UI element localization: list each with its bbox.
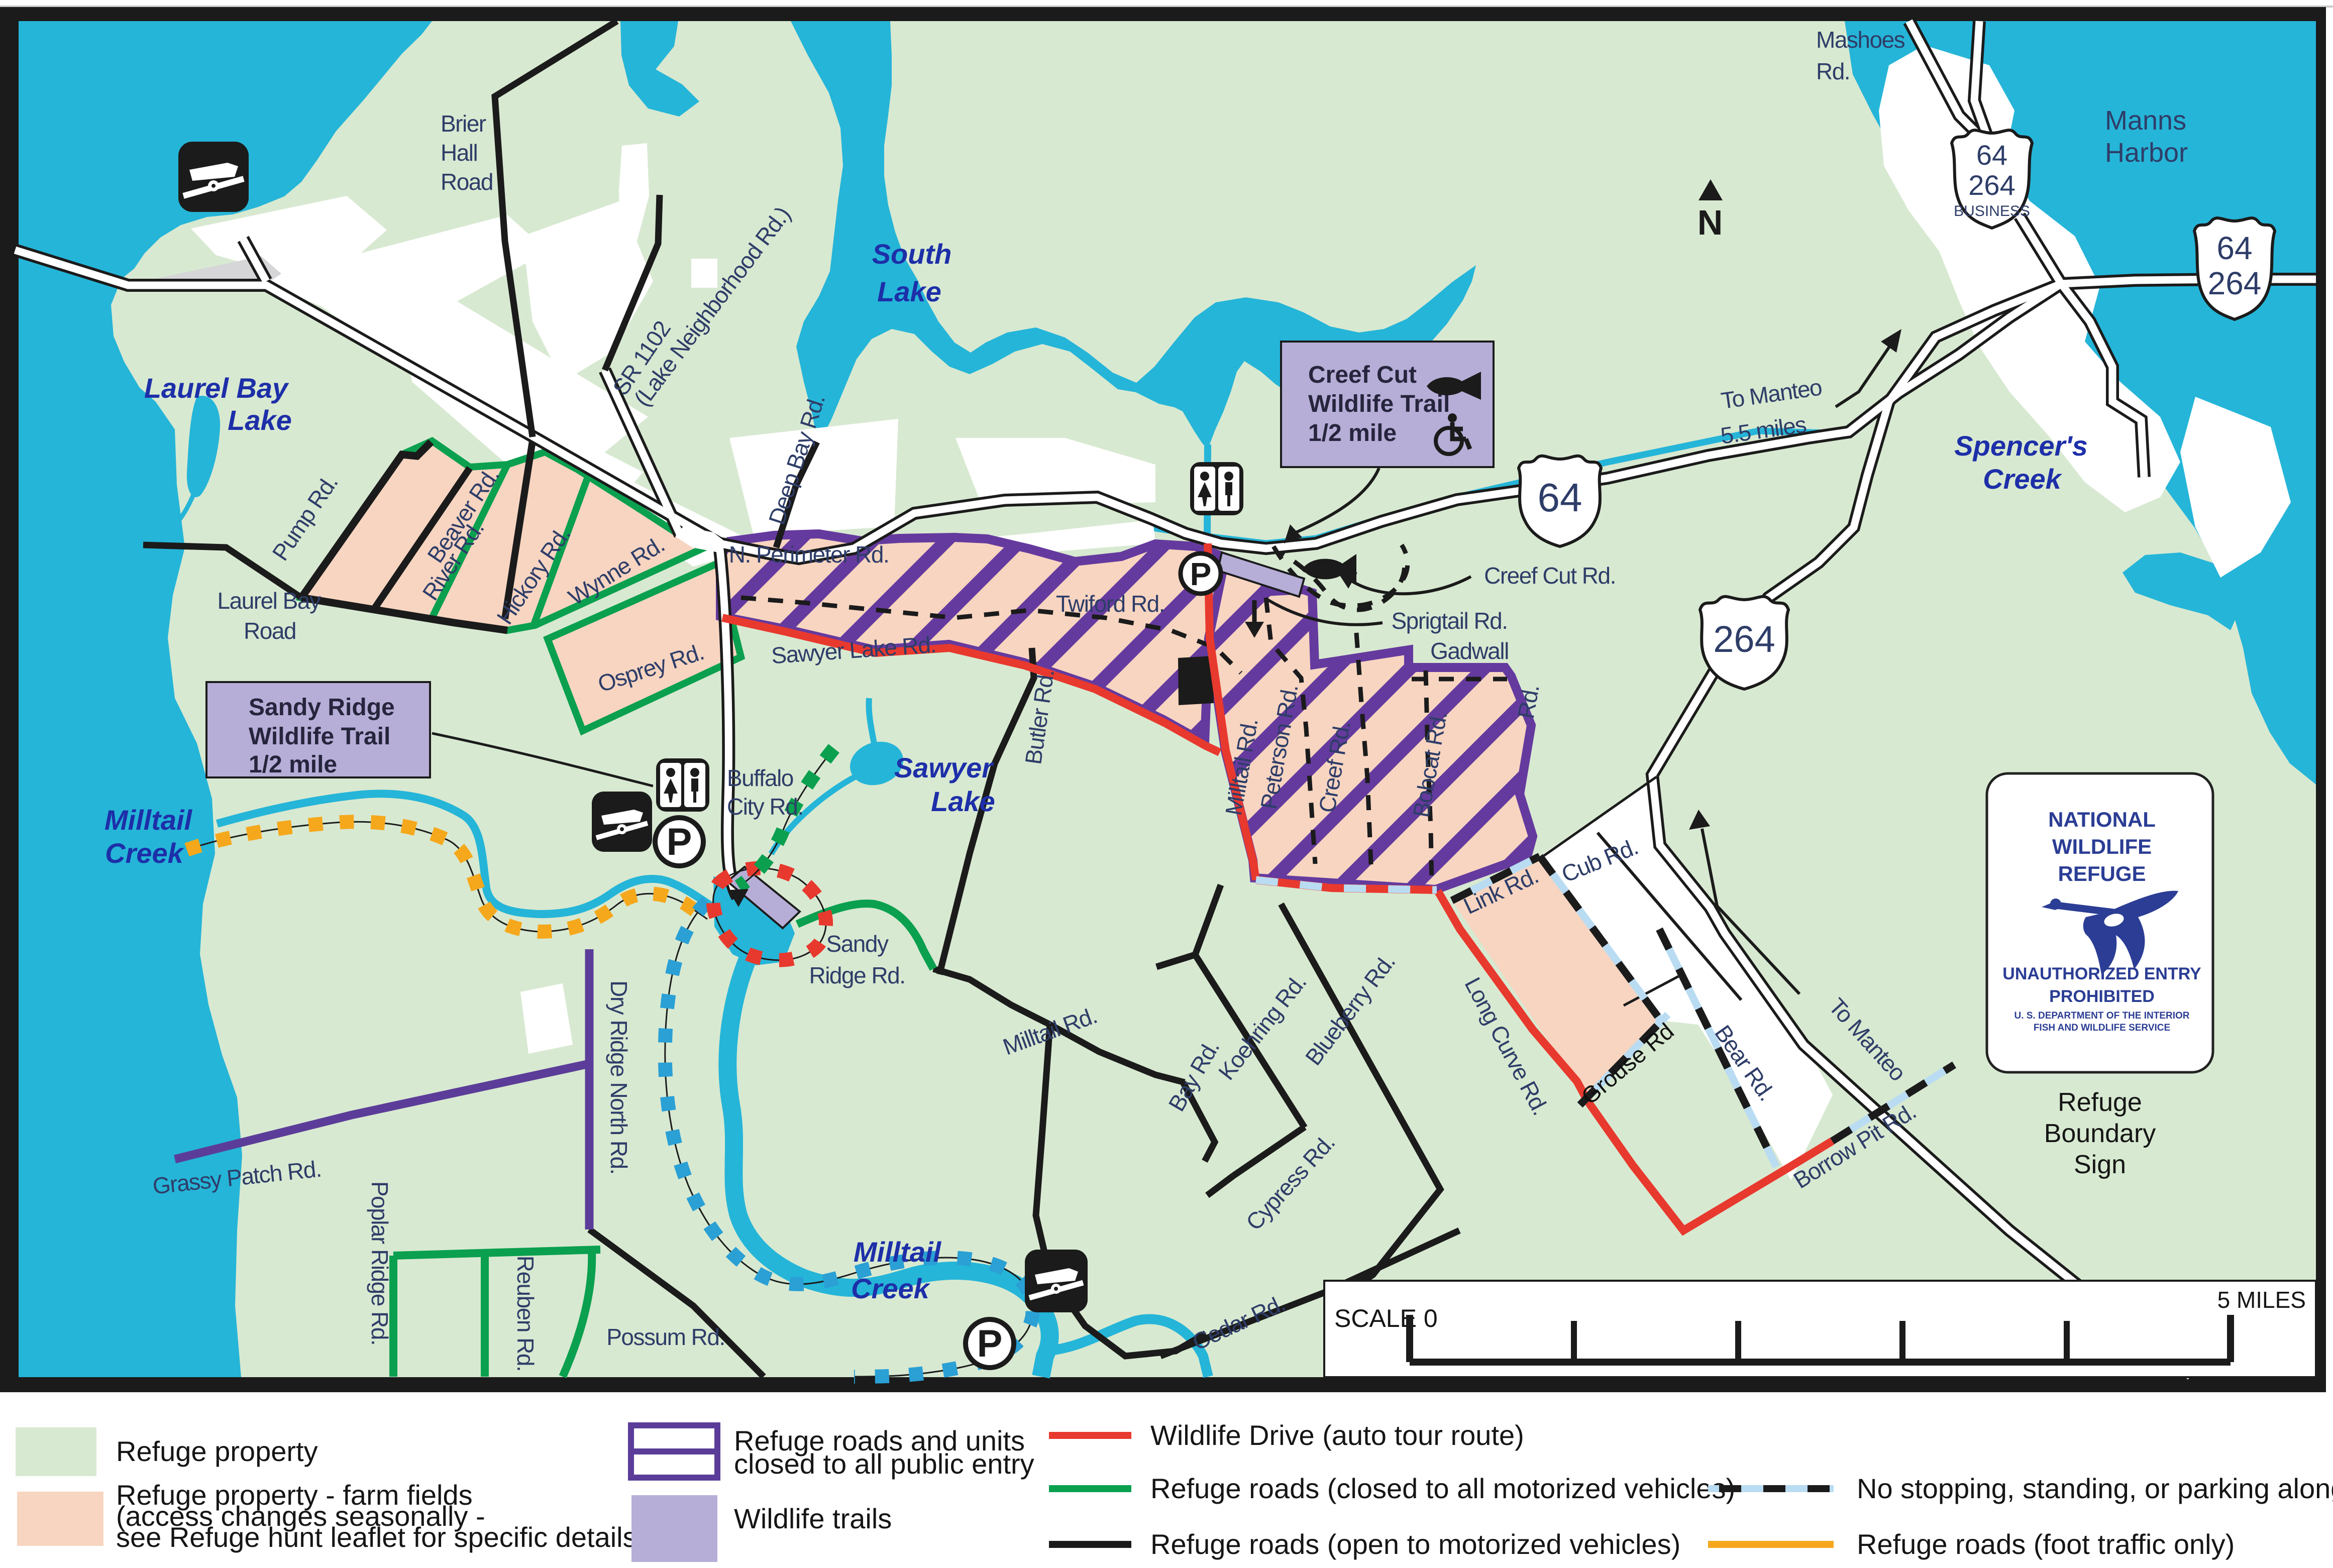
svg-text:64: 64 [1538,475,1582,520]
svg-text:SCALE 0: SCALE 0 [1334,1304,1438,1332]
svg-text:Dry Ridge North Rd.: Dry Ridge North Rd. [606,980,632,1174]
svg-text:Creef Cut: Creef Cut [1308,362,1417,388]
svg-text:Gadwall: Gadwall [1430,638,1509,664]
svg-text:64: 64 [2216,230,2252,266]
svg-text:NATIONAL: NATIONAL [2048,808,2156,831]
svg-text:FISH AND WILDLIFE SERVICE: FISH AND WILDLIFE SERVICE [2034,1023,2170,1033]
svg-text:5 MILES: 5 MILES [2217,1287,2306,1313]
svg-text:Sprigtail Rd.: Sprigtail Rd. [1391,608,1507,634]
svg-text:Twiford Rd.: Twiford Rd. [1056,591,1164,617]
svg-text:Road: Road [441,169,493,195]
svg-text:Buffalo: Buffalo [727,765,793,791]
svg-text:UNAUTHORIZED ENTRY: UNAUTHORIZED ENTRY [2002,964,2201,983]
svg-text:P: P [1190,556,1212,592]
svg-text:N. Perimeter Rd.: N. Perimeter Rd. [729,541,889,568]
svg-text:264: 264 [1713,618,1775,660]
svg-text:PROHIBITED: PROHIBITED [2049,987,2155,1006]
svg-text:closed to all public entry: closed to all public entry [734,1448,1034,1480]
svg-text:Wildlife trails: Wildlife trails [734,1503,892,1534]
svg-text:1/2 mile: 1/2 mile [1308,420,1397,446]
svg-text:P: P [667,821,692,863]
svg-text:Milltail: Milltail [854,1236,942,1268]
svg-text:Refuge: Refuge [2058,1088,2142,1117]
svg-text:Wildlife Trail: Wildlife Trail [249,723,390,750]
svg-text:Possum Rd.: Possum Rd. [606,1324,725,1350]
svg-text:Manns: Manns [2105,105,2186,136]
svg-text:Spencer's: Spencer's [1954,430,2087,462]
svg-text:264: 264 [1968,169,2015,201]
svg-text:Ridge Rd.: Ridge Rd. [809,962,905,988]
svg-text:Milltail: Milltail [104,804,193,836]
svg-text:Laurel Bay: Laurel Bay [144,372,289,404]
svg-text:1/2 mile: 1/2 mile [249,751,337,778]
svg-text:Hall: Hall [441,140,477,166]
svg-text:Wildlife Trail: Wildlife Trail [1308,391,1450,417]
svg-text:Laurel Bay: Laurel Bay [218,588,321,614]
svg-text:Refuge property: Refuge property [116,1435,318,1467]
svg-text:Poplar Ridge Rd.: Poplar Ridge Rd. [367,1181,393,1345]
svg-text:Lake: Lake [228,404,292,436]
svg-text:Creek: Creek [105,837,185,869]
svg-text:WILDLIFE: WILDLIFE [2052,835,2152,858]
svg-text:Refuge roads (foot traffic onl: Refuge roads (foot traffic only) [1857,1528,2235,1560]
svg-text:Sawyer: Sawyer [894,752,994,783]
svg-text:Sandy Ridge: Sandy Ridge [249,694,395,721]
svg-text:No stopping, standing, or park: No stopping, standing, or parking along … [1857,1473,2333,1504]
svg-text:Sandy: Sandy [826,931,889,957]
svg-text:Brier: Brier [441,110,486,137]
svg-text:see Refuge hunt leaflet for sp: see Refuge hunt leaflet for specific det… [116,1521,646,1553]
svg-text:BUSINESS: BUSINESS [1954,203,2030,219]
svg-text:Creek: Creek [851,1273,931,1304]
svg-text:Wildlife Drive (auto tour rout: Wildlife Drive (auto tour route) [1150,1419,1524,1451]
svg-text:Creef Cut Rd.: Creef Cut Rd. [1484,563,1616,589]
svg-text:Refuge roads (open to motorize: Refuge roads (open to motorized vehicles… [1150,1528,1680,1560]
svg-text:Boundary: Boundary [2044,1119,2156,1148]
svg-text:Lake: Lake [931,786,995,817]
svg-text:P: P [977,1322,1003,1365]
svg-text:City Rd.: City Rd. [727,794,803,820]
svg-text:U. S. DEPARTMENT OF THE INTERI: U. S. DEPARTMENT OF THE INTERIOR [2014,1011,2189,1021]
svg-text:Creek: Creek [1983,463,2063,495]
svg-text:South: South [872,238,952,270]
svg-text:Refuge roads (closed to all mo: Refuge roads (closed to all motorized ve… [1150,1473,1735,1504]
svg-text:64: 64 [1976,139,2007,171]
svg-text:Road: Road [244,618,296,644]
svg-text:Reuben Rd.: Reuben Rd. [512,1256,539,1372]
svg-text:Sign: Sign [2074,1150,2126,1179]
svg-text:264: 264 [2208,265,2262,301]
svg-text:N: N [1698,203,1723,242]
svg-text:Mashoes: Mashoes [1816,27,1905,53]
svg-text:Harbor: Harbor [2105,138,2188,168]
svg-text:REFUGE: REFUGE [2058,862,2146,885]
svg-text:Rd.: Rd. [1816,58,1850,84]
svg-text:Lake: Lake [877,276,941,307]
